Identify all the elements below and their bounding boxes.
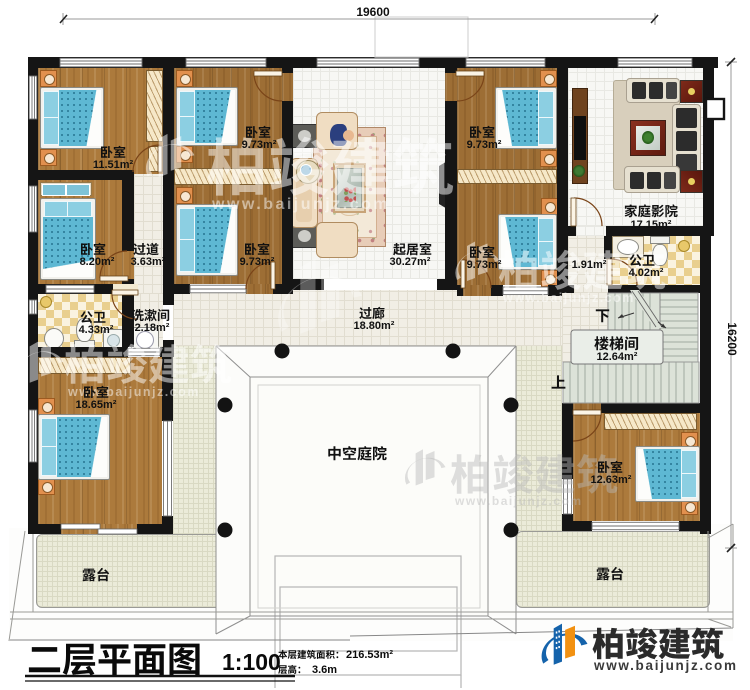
svg-text:www.baijunjz.com: www.baijunjz.com: [593, 658, 738, 673]
svg-text:216.53m²: 216.53m²: [346, 649, 393, 661]
svg-text:1:100: 1:100: [222, 649, 281, 675]
svg-text:www.baijunjz.com: www.baijunjz.com: [454, 494, 583, 508]
svg-text:16200: 16200: [725, 322, 739, 356]
svg-text:www.baijunjz.com: www.baijunjz.com: [211, 196, 390, 213]
svg-text:19600: 19600: [356, 5, 390, 19]
svg-text:www.baijunjz.com: www.baijunjz.com: [502, 291, 635, 305]
svg-text:3.6m: 3.6m: [312, 664, 337, 676]
